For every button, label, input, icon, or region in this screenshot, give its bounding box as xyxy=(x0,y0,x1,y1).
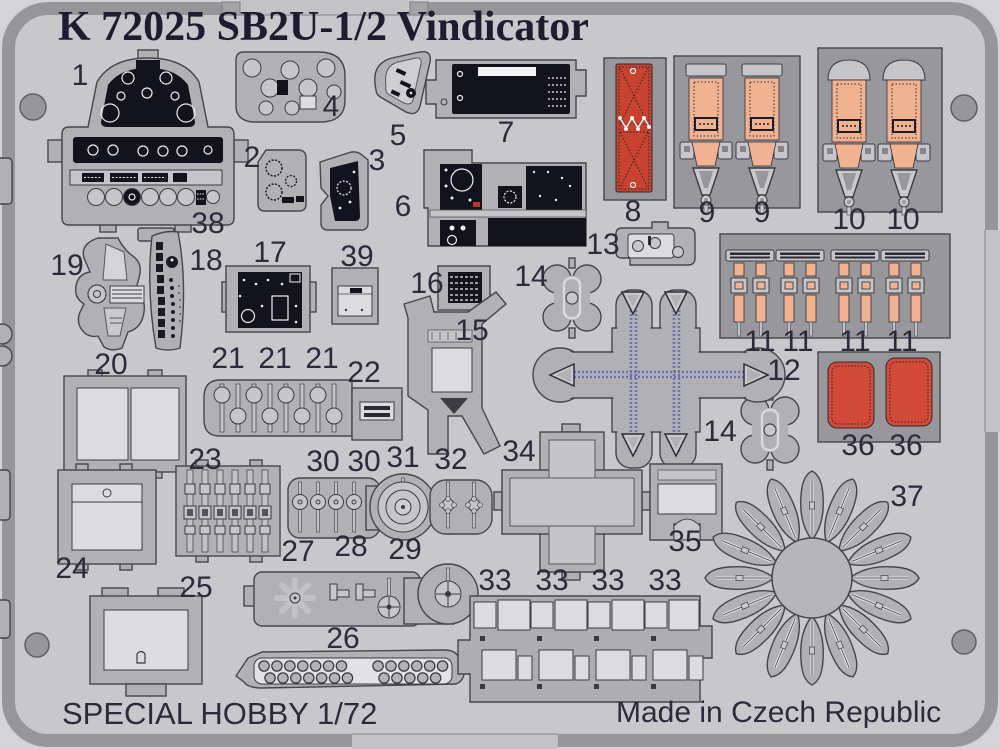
part-7 xyxy=(426,60,586,118)
part-25 xyxy=(90,588,202,696)
part-number-label: 4 xyxy=(323,92,340,122)
part-21-rod-set xyxy=(204,380,352,436)
part-number-label: 32 xyxy=(434,445,467,475)
brand-scale-text: SPECIAL HOBBY 1/72 xyxy=(62,698,377,729)
part-number-label: 38 xyxy=(191,209,224,239)
part-10-seatbelts xyxy=(818,48,942,215)
part-17 xyxy=(222,266,316,332)
part-number-label: 30 xyxy=(306,447,339,477)
photoetch-fret-sheet: K 72025 SB2U-1/2 Vindicator SPECIAL HOBB… xyxy=(0,0,1000,749)
part-number-label: 11 xyxy=(839,327,870,357)
part-number-label: 33 xyxy=(478,566,511,596)
part-number-label: 16 xyxy=(410,269,443,299)
part-number-label: 11 xyxy=(782,327,813,357)
part-number-label: 10 xyxy=(886,205,919,235)
part-number-label: 19 xyxy=(50,251,83,281)
sprocket-hole xyxy=(20,94,46,120)
part-number-label: 1 xyxy=(72,61,89,91)
part-number-label: 31 xyxy=(386,443,419,473)
part-number-label: 23 xyxy=(188,445,221,475)
sheet-title: K 72025 SB2U-1/2 Vindicator xyxy=(58,6,589,48)
part-6-radio-panel xyxy=(424,150,586,246)
sprocket-hole xyxy=(951,95,977,121)
part-13 xyxy=(616,222,695,265)
part-33-box-set xyxy=(458,596,712,702)
fret-artwork xyxy=(0,0,1000,749)
part-number-label: 36 xyxy=(889,431,922,461)
part-number-label: 9 xyxy=(754,198,771,228)
origin-text: Made in Czech Republic xyxy=(616,698,941,728)
part-number-label: 39 xyxy=(340,242,373,272)
part-number-label: 5 xyxy=(390,121,407,151)
part-37-engine-wiring-harness xyxy=(705,471,919,685)
part-number-label: 12 xyxy=(767,356,800,386)
part-39 xyxy=(332,268,378,324)
part-number-label: 29 xyxy=(388,535,421,565)
part-18 xyxy=(150,232,184,351)
part-number-label: 11 xyxy=(744,327,775,357)
part-11-belt-set xyxy=(720,234,950,338)
part-number-label: 37 xyxy=(890,482,923,512)
sprocket-hole xyxy=(25,633,49,657)
part-2 xyxy=(258,150,306,211)
part-number-label: 33 xyxy=(648,566,681,596)
part-number-label: 35 xyxy=(668,527,701,557)
part-number-label: 18 xyxy=(189,246,222,276)
part-number-label: 34 xyxy=(502,437,535,467)
part-20 xyxy=(64,370,186,478)
part-number-label: 17 xyxy=(253,238,286,268)
part-22 xyxy=(352,388,402,440)
part-26-pedal-bar xyxy=(236,650,464,688)
part-number-label: 27 xyxy=(281,537,314,567)
part-number-label: 9 xyxy=(699,198,716,228)
part-number-label: 15 xyxy=(455,316,488,346)
part-number-label: 11 xyxy=(886,327,917,357)
part-number-label: 7 xyxy=(498,118,515,148)
part-3 xyxy=(320,152,368,230)
part-number-label: 30 xyxy=(347,447,380,477)
part-27-28-29-wheels-and-levers xyxy=(244,564,478,626)
part-8-harness-pad xyxy=(604,58,666,200)
part-number-label: 33 xyxy=(535,566,568,596)
part-number-label: 25 xyxy=(179,573,212,603)
part-number-label: 36 xyxy=(841,431,874,461)
part-number-label: 26 xyxy=(326,624,359,654)
part-number-label: 2 xyxy=(244,143,261,173)
part-number-label: 28 xyxy=(334,532,367,562)
part-number-label: 22 xyxy=(347,358,380,388)
part-number-label: 13 xyxy=(586,230,619,260)
part-27-fan xyxy=(277,580,313,616)
part-number-label: 24 xyxy=(55,554,88,584)
part-number-label: 21 xyxy=(258,344,291,374)
part-30-31-32-knobs-and-wheels xyxy=(288,474,492,540)
part-number-label: 6 xyxy=(395,192,412,222)
part-number-label: 14 xyxy=(703,417,736,447)
part-9-seatbelts xyxy=(674,56,800,213)
part-number-label: 8 xyxy=(625,197,642,227)
part-number-label: 33 xyxy=(591,566,624,596)
part-number-label: 21 xyxy=(211,344,244,374)
part-number-label: 21 xyxy=(305,344,338,374)
sprocket-hole xyxy=(952,630,976,654)
part-number-label: 3 xyxy=(369,146,386,176)
part-number-label: 10 xyxy=(832,205,865,235)
part-number-label: 20 xyxy=(94,350,127,380)
part-number-label: 14 xyxy=(514,262,547,292)
